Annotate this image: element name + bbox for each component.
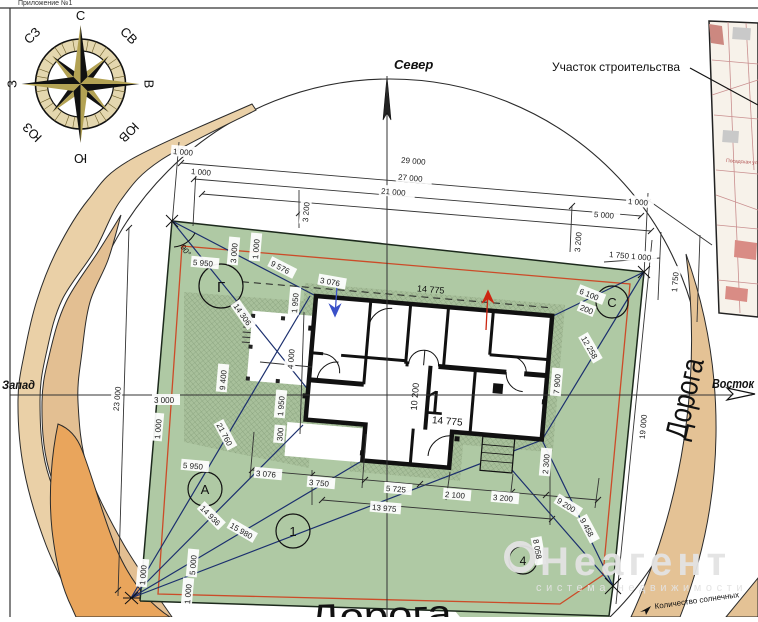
svg-text:3 200: 3 200 <box>573 231 584 252</box>
svg-text:3 076: 3 076 <box>256 469 277 480</box>
svg-text:3 200: 3 200 <box>301 201 312 222</box>
svg-text:300: 300 <box>275 427 285 442</box>
svg-text:1 950: 1 950 <box>290 292 301 313</box>
svg-text:1 000: 1 000 <box>138 564 149 585</box>
svg-text:Неагент: Неагент <box>540 540 731 584</box>
svg-text:С: С <box>76 8 85 23</box>
svg-text:З: З <box>5 80 20 88</box>
svg-text:3 750: 3 750 <box>309 478 330 489</box>
svg-text:1 000: 1 000 <box>251 238 262 259</box>
svg-text:Ю: Ю <box>74 151 87 166</box>
svg-text:2 100: 2 100 <box>445 490 466 501</box>
svg-text:Г: Г <box>217 279 225 296</box>
svg-text:Приложение №1: Приложение №1 <box>18 0 73 7</box>
svg-text:5 950: 5 950 <box>193 258 214 269</box>
svg-text:1 000: 1 000 <box>628 197 649 208</box>
svg-text:система недвижимости: система недвижимости <box>536 582 747 594</box>
svg-text:1 000: 1 000 <box>173 147 194 158</box>
svg-text:3 000: 3 000 <box>154 396 175 405</box>
svg-text:4 000: 4 000 <box>286 348 297 369</box>
svg-text:Восток: Восток <box>712 376 755 391</box>
svg-text:Запад: Запад <box>2 378 35 392</box>
svg-text:5 000: 5 000 <box>594 210 615 221</box>
svg-text:С: С <box>607 295 616 310</box>
svg-text:1 000: 1 000 <box>153 418 164 439</box>
svg-text:5 000: 5 000 <box>188 554 199 575</box>
svg-text:1 950: 1 950 <box>276 395 287 416</box>
svg-text:9 400: 9 400 <box>218 369 229 390</box>
svg-text:Север: Север <box>394 57 433 72</box>
svg-text:1: 1 <box>289 524 296 539</box>
svg-text:1 750: 1 750 <box>670 271 681 292</box>
svg-text:3 000: 3 000 <box>229 242 240 263</box>
svg-text:1 000: 1 000 <box>183 583 194 604</box>
svg-text:3 200: 3 200 <box>493 493 514 504</box>
svg-text:7 900: 7 900 <box>552 373 563 394</box>
svg-text:5 725: 5 725 <box>386 484 407 495</box>
svg-text:Участок строительства: Участок строительства <box>552 60 680 74</box>
svg-text:5 950: 5 950 <box>183 461 204 472</box>
svg-text:1 000: 1 000 <box>191 167 212 178</box>
svg-text:А: А <box>201 482 210 497</box>
svg-text:2 300: 2 300 <box>541 453 552 474</box>
svg-text:Дорога: Дорога <box>309 593 453 617</box>
svg-text:В: В <box>142 80 157 89</box>
